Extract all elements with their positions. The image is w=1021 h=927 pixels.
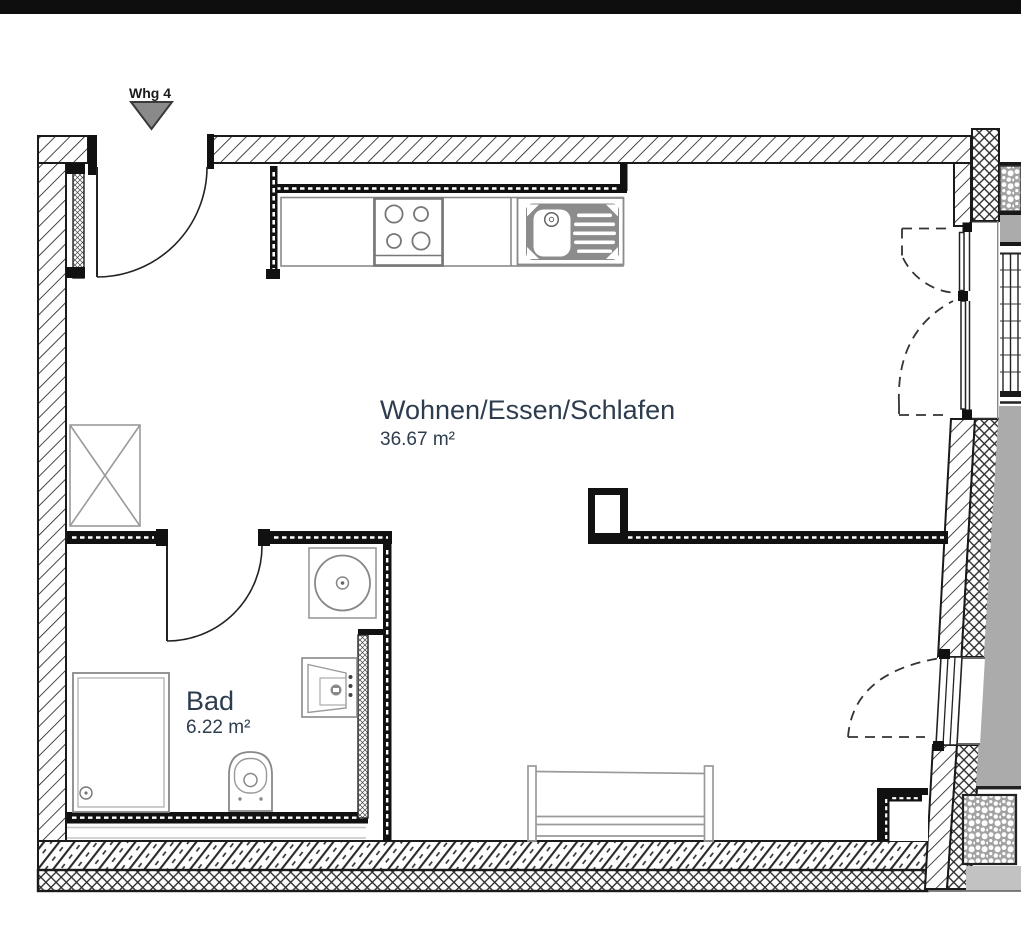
svg-text:Whg 4: Whg 4 — [129, 85, 171, 101]
svg-text:36.67 m²: 36.67 m² — [380, 429, 455, 450]
svg-text:Bad: Bad — [186, 686, 234, 716]
svg-text:6.22 m²: 6.22 m² — [186, 717, 250, 738]
svg-text:Wohnen/Essen/Schlafen: Wohnen/Essen/Schlafen — [380, 395, 675, 425]
